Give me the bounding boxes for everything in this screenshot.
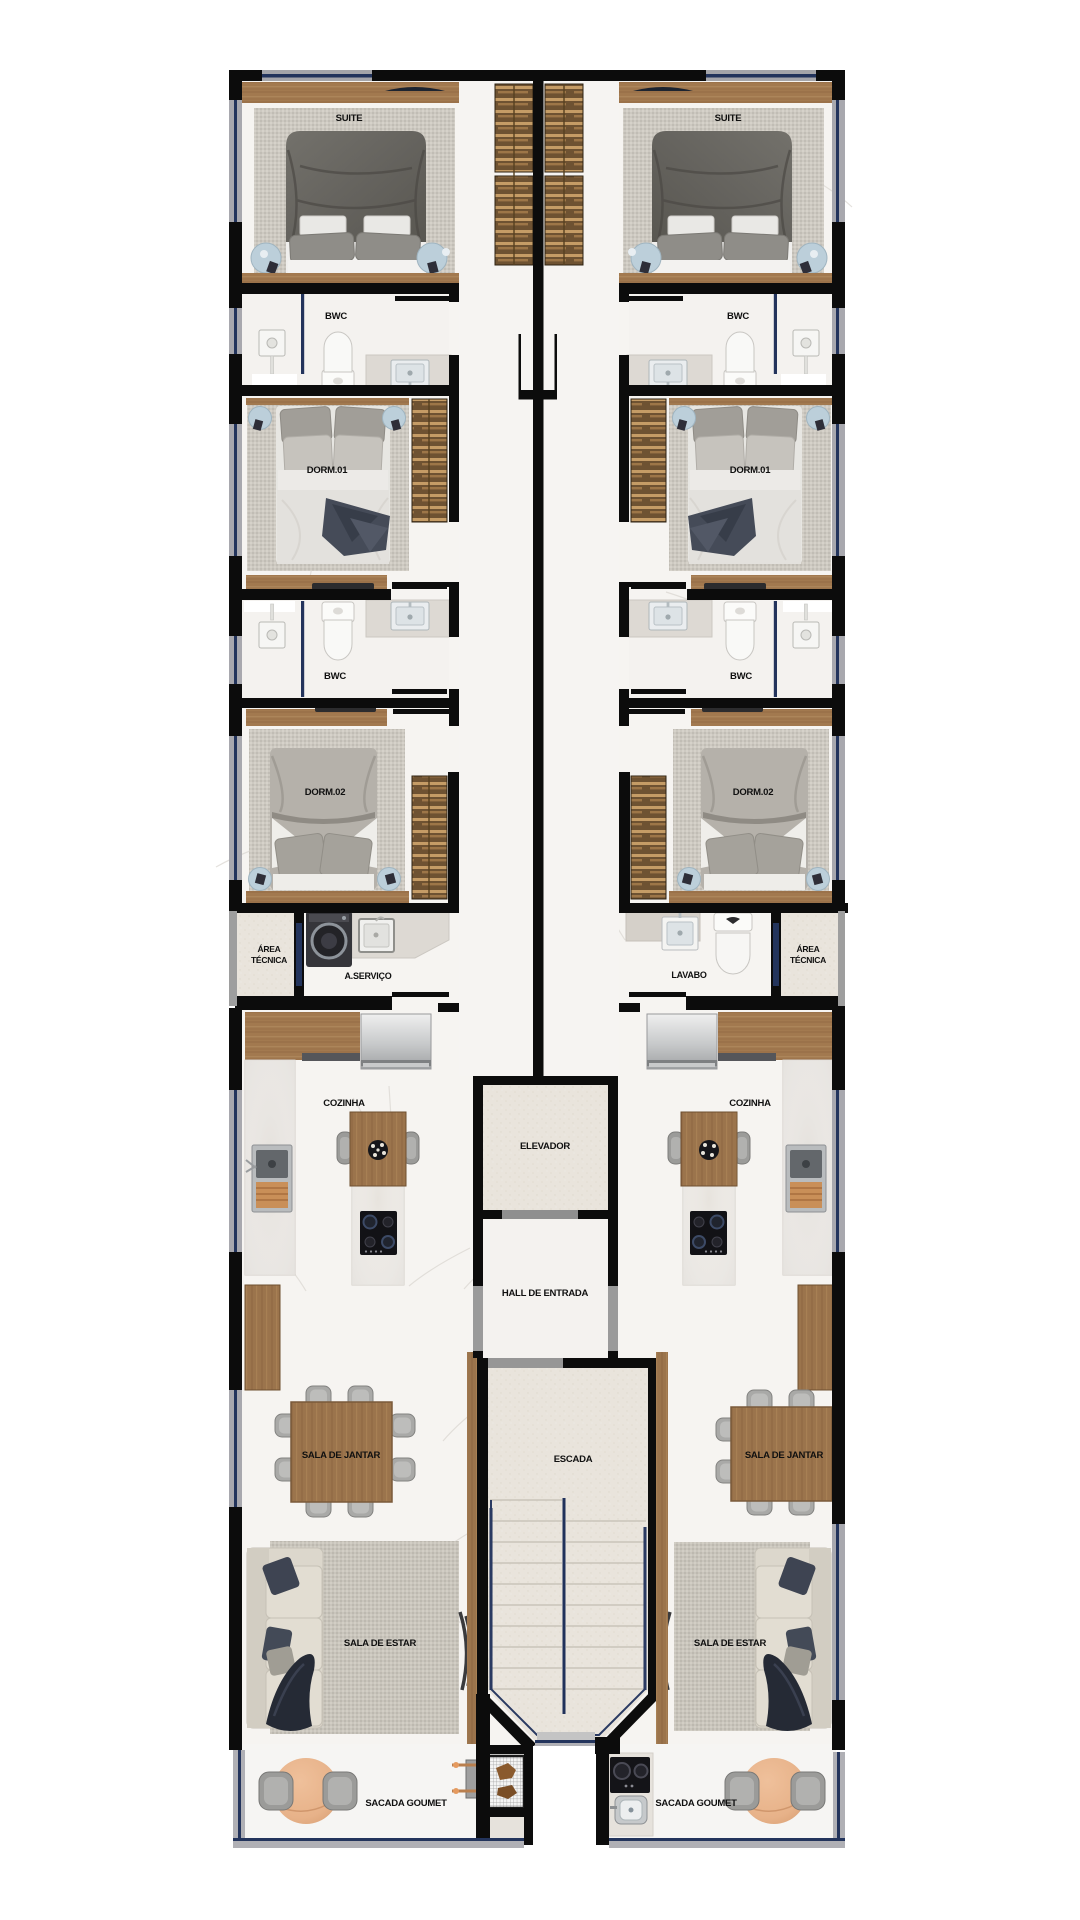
svg-text:DORM.01: DORM.01	[307, 465, 348, 476]
svg-text:SALA DE ESTAR: SALA DE ESTAR	[694, 1638, 767, 1649]
svg-text:COZINHA: COZINHA	[729, 1098, 771, 1109]
svg-text:ESCADA: ESCADA	[554, 1454, 593, 1465]
svg-text:TÉCNICA: TÉCNICA	[251, 955, 287, 965]
svg-text:COZINHA: COZINHA	[323, 1098, 365, 1109]
svg-text:ÁREA: ÁREA	[796, 944, 819, 954]
svg-text:ÁREA: ÁREA	[257, 944, 280, 954]
svg-text:DORM.02: DORM.02	[305, 787, 345, 798]
svg-text:SALA DE JANTAR: SALA DE JANTAR	[302, 1450, 381, 1461]
svg-text:SALA DE JANTAR: SALA DE JANTAR	[745, 1450, 824, 1461]
svg-text:SALA DE ESTAR: SALA DE ESTAR	[344, 1638, 417, 1649]
svg-text:BWC: BWC	[325, 311, 347, 322]
svg-text:SACADA GOUMET: SACADA GOUMET	[655, 1798, 737, 1809]
svg-text:A.SERVIÇO: A.SERVIÇO	[344, 971, 391, 981]
svg-text:TÉCNICA: TÉCNICA	[790, 955, 826, 965]
svg-text:SUITE: SUITE	[336, 113, 363, 124]
svg-text:DORM.02: DORM.02	[733, 787, 773, 798]
svg-text:SACADA GOUMET: SACADA GOUMET	[365, 1798, 447, 1809]
svg-text:BWC: BWC	[730, 671, 752, 682]
svg-text:SUITE: SUITE	[715, 113, 742, 124]
svg-text:HALL DE ENTRADA: HALL DE ENTRADA	[502, 1288, 589, 1299]
svg-text:LAVABO: LAVABO	[671, 970, 706, 980]
svg-text:BWC: BWC	[324, 671, 346, 682]
svg-text:ELEVADOR: ELEVADOR	[520, 1141, 570, 1152]
svg-text:BWC: BWC	[727, 311, 749, 322]
svg-text:DORM.01: DORM.01	[730, 465, 771, 476]
